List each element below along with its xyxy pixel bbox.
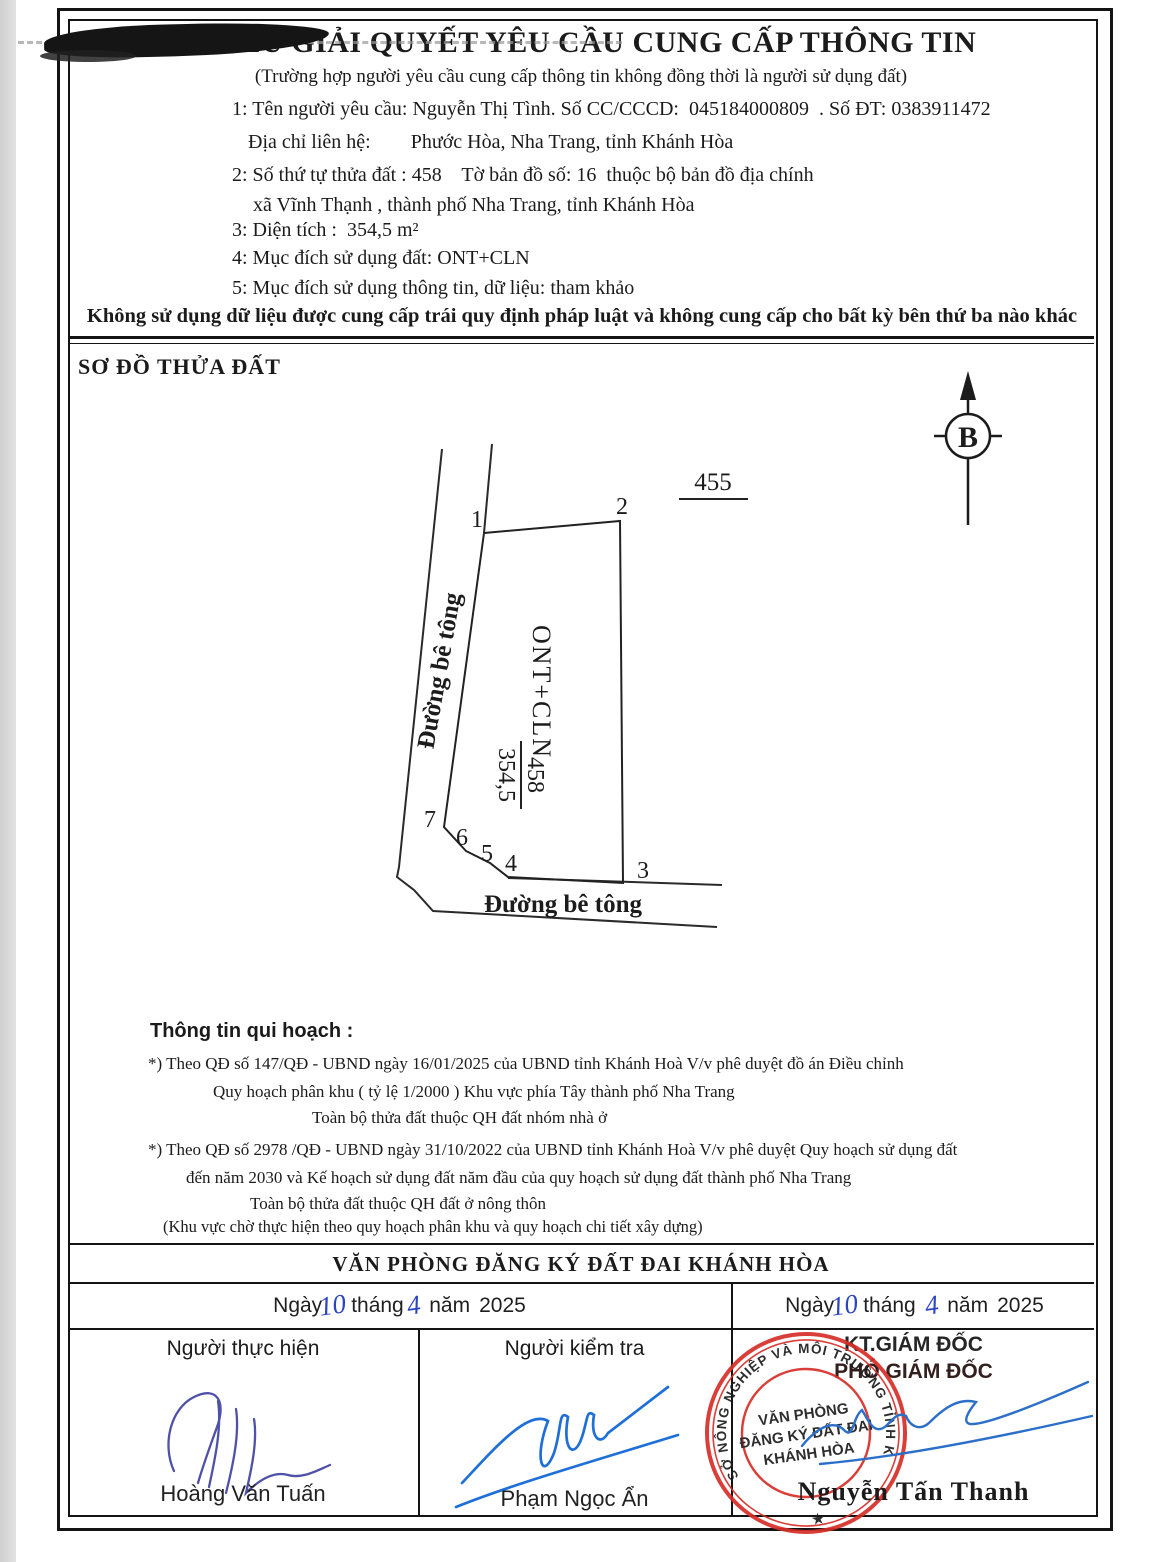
date-left-day-handwritten: 10: [317, 1290, 347, 1320]
info-line-landuse: 4: Mục đích sử dụng đất: ONT+CLN: [232, 247, 530, 270]
north-letter: B: [958, 421, 978, 454]
parcel-area-label: 354,5: [493, 748, 519, 802]
section-divider: [70, 336, 1094, 339]
planning-p2-line2: đến năm 2030 và Kế hoạch sử dụng đất năm…: [186, 1168, 851, 1188]
office-name: VĂN PHÒNG ĐĂNG KÝ ĐẤT ĐAI KHÁNH HÒA: [68, 1252, 1094, 1277]
footer-table-top: [70, 1243, 1094, 1245]
name-executor: Hoàng Văn Tuấn: [68, 1481, 418, 1507]
signature-director: [790, 1368, 1100, 1478]
parcel-diagram: 1 2 3 4 5 6 7 455 ONT+CLN 458 354,5 Đườn…: [75, 350, 1100, 1240]
info-line-parcel: 2: Số thứ tự thửa đất : 458 Tờ bản đồ số…: [232, 164, 814, 187]
north-arrow: B: [934, 371, 1002, 525]
date-left-nam: năm: [429, 1294, 470, 1318]
date-column-divider: [731, 1282, 733, 1328]
vertex-label-7: 7: [424, 807, 436, 833]
info-line-commune: xã Vĩnh Thạnh , thành phố Nha Trang, tỉn…: [253, 194, 694, 217]
road-bottom-label: Đường bê tông: [484, 891, 643, 918]
section-divider-thin: [70, 343, 1094, 344]
date-left-month-handwritten: 4: [405, 1291, 422, 1320]
date-right: Ngày 10 tháng 4 năm 2025: [733, 1292, 1096, 1319]
planning-p1-line3: Toàn bộ thửa đất thuộc QH đất nhóm nhà ở: [312, 1108, 607, 1128]
vertex-label-6: 6: [456, 825, 468, 851]
date-left: Ngày 10 tháng 4 năm 2025: [68, 1292, 731, 1319]
planning-p2-line1: *) Theo QĐ số 2978 /QĐ - UBND ngày 31/10…: [148, 1140, 957, 1160]
date-right-day-handwritten: 10: [829, 1290, 859, 1320]
scanned-document: PHIẾU GIẢI QUYẾT YÊU CẦU CUNG CẤP THÔNG …: [0, 0, 1170, 1562]
name-checker: Phạm Ngọc Ẩn: [418, 1486, 731, 1512]
page-subtitle: (Trường hợp người yêu cầu cung cấp thông…: [68, 66, 1094, 88]
planning-p1-line2: Quy hoạch phân khu ( tỷ lệ 1/2000 ) Khu …: [213, 1082, 735, 1102]
date-right-ngay: Ngày: [785, 1294, 834, 1318]
name-director: Nguyễn Tấn Thanh: [731, 1477, 1096, 1507]
vertex-label-4: 4: [505, 851, 517, 877]
parcel-number-label: 458: [522, 757, 548, 793]
date-right-thang: tháng: [863, 1294, 916, 1318]
planning-p1-line1: *) Theo QĐ số 147/QĐ - UBND ngày 16/01/2…: [148, 1054, 904, 1074]
usage-warning: Không sử dụng dữ liệu được cung cấp trái…: [70, 305, 1094, 328]
planning-p2-line4: (Khu vực chờ thực hiện theo quy hoạch ph…: [163, 1217, 703, 1237]
date-right-year: 2025: [997, 1294, 1044, 1318]
planning-heading: Thông tin qui hoạch :: [150, 1020, 353, 1043]
vertex-label-2: 2: [616, 494, 628, 520]
vertex-label-3: 3: [637, 858, 649, 884]
planning-p2-line3: Toàn bộ thửa đất thuộc QH đất ở nông thô…: [250, 1194, 546, 1214]
info-line-area: 3: Diện tích : 354,5 m²: [232, 219, 419, 242]
info-line-address: Địa chỉ liên hệ: Phước Hòa, Nha Trang, t…: [248, 131, 733, 154]
date-left-ngay: Ngày: [273, 1294, 322, 1318]
footer-row-line-2: [70, 1328, 1094, 1330]
vertex-label-5: 5: [481, 841, 493, 867]
stamp-star: ★: [810, 1510, 827, 1529]
scan-artifact-blob-small: [40, 50, 136, 62]
date-left-year: 2025: [479, 1294, 526, 1318]
role-executor: Người thực hiện: [68, 1337, 418, 1361]
vertex-label-1: 1: [471, 507, 483, 533]
land-use-label: ONT+CLN: [527, 625, 556, 759]
date-right-month-handwritten: 4: [923, 1291, 940, 1320]
adjacent-parcel-label: 455: [694, 469, 732, 496]
scan-edge-shadow: [0, 0, 16, 1562]
info-line-purpose: 5: Mục đích sử dụng thông tin, dữ liệu: …: [232, 277, 634, 300]
info-line-requester: 1: Tên người yêu cầu: Nguyễn Thị Tình. S…: [232, 98, 991, 121]
footer-row-line-1: [70, 1282, 1094, 1284]
date-left-thang: tháng: [351, 1294, 404, 1318]
role-checker: Người kiểm tra: [418, 1337, 731, 1361]
date-right-nam: năm: [947, 1294, 988, 1318]
road-right-edge-upper: [484, 444, 492, 533]
